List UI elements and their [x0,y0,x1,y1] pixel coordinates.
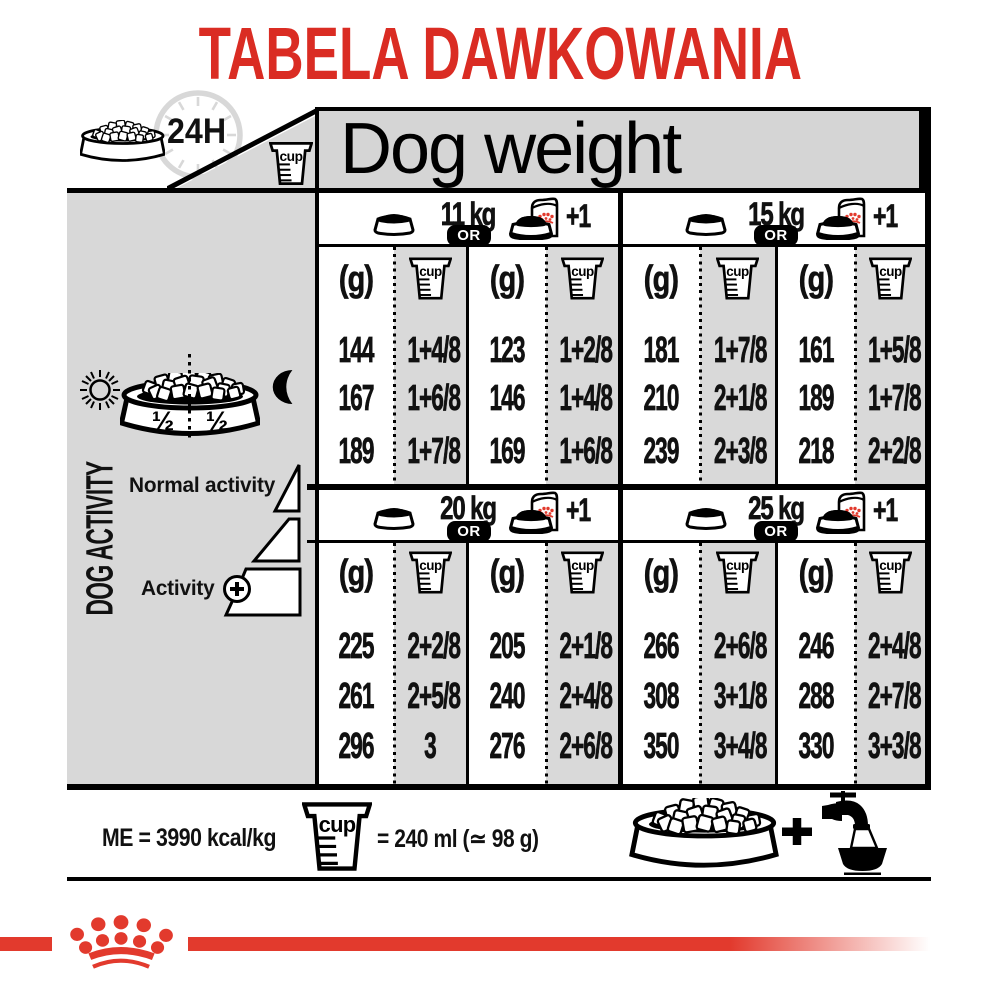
svg-text:cup: cup [279,149,302,164]
svg-text:½: ½ [206,406,229,436]
svg-text:½: ½ [152,406,175,436]
